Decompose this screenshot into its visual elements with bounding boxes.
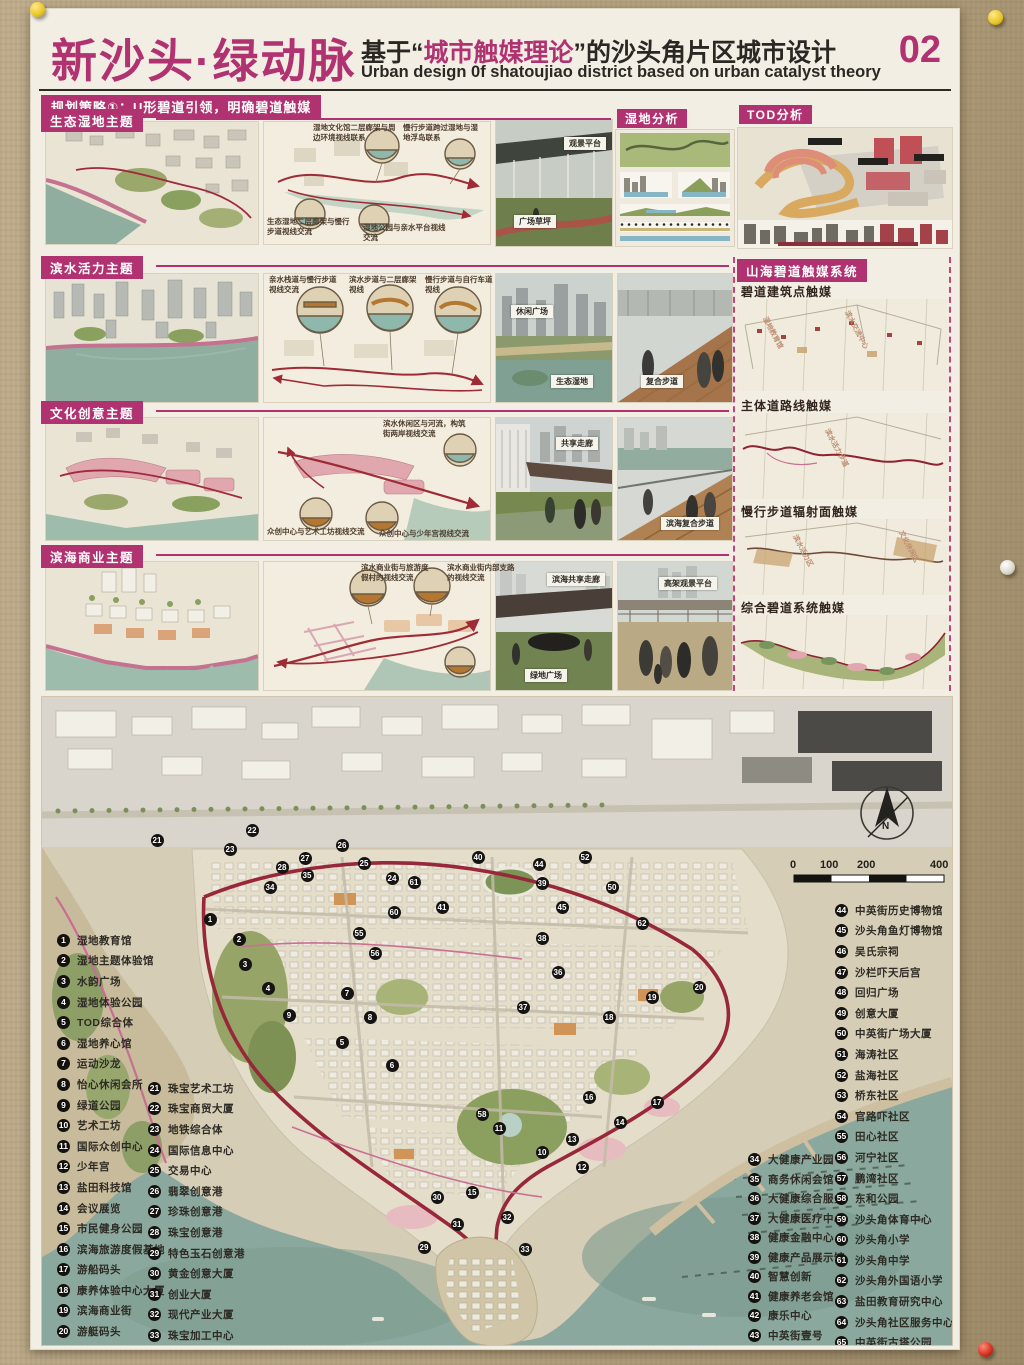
scale-label: 400 <box>930 859 948 871</box>
legend-label: 水韵广场 <box>77 974 121 989</box>
catalyst-diagram-4 <box>737 615 949 689</box>
legend-item: 37大健康医疗中心 <box>748 1209 845 1229</box>
map-marker: 30 <box>431 1191 444 1204</box>
tod-analysis-art <box>738 128 952 248</box>
legend-column-2: 21珠宝艺术工坊22珠宝商贸大厦23地铁综合体24国际信息中心25交易中心26翡… <box>148 1078 245 1346</box>
legend-number-badge: 56 <box>835 1151 848 1164</box>
wetland-analysis-art <box>616 130 734 246</box>
legend-label: 健康金融中心 <box>768 1230 834 1245</box>
legend-item: 6湿地养心馆 <box>57 1033 165 1054</box>
photo-label: 滨海共享走廊 <box>547 573 605 586</box>
map-marker: 32 <box>501 1211 514 1224</box>
aerial-waterfront-vitality-art <box>46 274 258 402</box>
tod-analysis-panel <box>737 127 953 249</box>
legend-item: 55田心社区 <box>835 1127 953 1148</box>
legend-label: 田心社区 <box>855 1129 899 1144</box>
legend-item: 51海涛社区 <box>835 1044 953 1065</box>
legend-item: 45沙头角鱼灯博物馆 <box>835 921 953 942</box>
legend-number-badge: 48 <box>835 986 848 999</box>
legend-number-badge: 20 <box>57 1325 70 1338</box>
legend-label: 沙头角小学 <box>855 1232 910 1247</box>
legend-item: 33珠宝加工中心 <box>148 1325 245 1346</box>
callout: 慢行步道与自行车道视线 <box>425 275 495 295</box>
photo-label: 复合步道 <box>641 375 683 388</box>
legend-label: 滨海商业街 <box>77 1303 132 1318</box>
legend-number-badge: 12 <box>57 1160 70 1173</box>
row-tag-waterfront-vitality: 滨水活力主题 <box>41 256 143 279</box>
legend-item: 21珠宝艺术工坊 <box>148 1078 245 1099</box>
legend-number-badge: 16 <box>57 1243 70 1256</box>
legend-item: 34大健康产业园 <box>748 1150 845 1170</box>
photo-label: 观景平台 <box>564 137 606 150</box>
legend-number-badge: 9 <box>57 1099 70 1112</box>
map-marker: 27 <box>299 852 312 865</box>
legend-label: 会议展览 <box>77 1201 121 1216</box>
legend-item: 54官路吓社区 <box>835 1106 953 1127</box>
callout: 湿地文化馆二层廊架与周边环境视线联系 <box>313 123 401 143</box>
legend-number-badge: 3 <box>57 975 70 988</box>
legend-item: 52盐海社区 <box>835 1065 953 1086</box>
panel-tag-wetland-analysis: 湿地分析 <box>617 109 687 128</box>
legend-label: 中英街历史博物馆 <box>855 903 943 918</box>
map-marker: 41 <box>436 901 449 914</box>
legend-label: 绿道公园 <box>77 1098 121 1113</box>
callout: 滨水商业街内部支路的视线交流 <box>447 563 517 583</box>
callout: 滨水步道与二层廊架视线 <box>349 275 419 295</box>
legend-number-badge: 6 <box>57 1037 70 1050</box>
legend-number-badge: 40 <box>748 1270 761 1283</box>
legend-label: 湿地体验公园 <box>77 995 143 1010</box>
legend-label: 中英街壹号 <box>768 1328 823 1343</box>
photo-shared-corridor <box>495 417 613 541</box>
aerial-eco-wetland <box>45 121 259 245</box>
legend-item: 7运动沙龙 <box>57 1054 165 1075</box>
legend-number-badge: 17 <box>57 1263 70 1276</box>
map-marker: 50 <box>606 881 619 894</box>
legend-label: 创意大厦 <box>855 1006 899 1021</box>
legend-number-badge: 36 <box>748 1192 761 1205</box>
legend-number-badge: 65 <box>835 1336 848 1346</box>
scale-label: 200 <box>857 859 875 871</box>
legend-number-badge: 58 <box>835 1192 848 1205</box>
compass-north-label: N <box>882 821 889 832</box>
legend-item: 61沙头角中学 <box>835 1250 953 1271</box>
legend-number-badge: 27 <box>148 1205 161 1218</box>
legend-number-badge: 25 <box>148 1164 161 1177</box>
map-marker: 60 <box>388 906 401 919</box>
callout: 众创中心与艺术工坊视线交流 <box>267 527 377 537</box>
legend-number-badge: 62 <box>835 1274 848 1287</box>
legend-number-badge: 11 <box>57 1140 70 1153</box>
legend-number-badge: 41 <box>748 1290 761 1303</box>
legend-label: 国际信息中心 <box>168 1143 234 1158</box>
aerial-seaside-commerce <box>45 561 259 691</box>
legend-item: 42康乐中心 <box>748 1306 845 1326</box>
legend-label: 交易中心 <box>168 1163 212 1178</box>
legend-item: 65中英街古塔公园 <box>835 1332 953 1346</box>
map-marker: 22 <box>246 824 259 837</box>
legend-number-badge: 51 <box>835 1048 848 1061</box>
legend-item: 40智慧创新 <box>748 1267 845 1287</box>
legend-column-3: 34大健康产业园35商务休闲会馆36大健康综合服务37大健康医疗中心38健康金融… <box>748 1150 845 1345</box>
map-marker: 28 <box>276 861 289 874</box>
map-marker: 40 <box>472 851 485 864</box>
map-marker: 52 <box>579 851 592 864</box>
map-marker: 21 <box>151 834 164 847</box>
right-edge-dashed <box>949 257 951 691</box>
legend-item: 56河宁社区 <box>835 1147 953 1168</box>
subtitle-en: Urban design 0f shatoujiao district base… <box>361 63 881 82</box>
legend-label: 大健康医疗中心 <box>768 1211 845 1226</box>
legend-number-badge: 13 <box>57 1181 70 1194</box>
map-marker: 23 <box>224 843 237 856</box>
legend-item: 46吴氏宗祠 <box>835 941 953 962</box>
legend-number-badge: 42 <box>748 1309 761 1322</box>
catalyst-section-3: 慢行步道辐射面触媒 <box>741 503 858 520</box>
legend-label: 国际众创中心 <box>77 1139 143 1154</box>
callout: 众创中心与少年宫视线交流 <box>379 529 489 539</box>
legend-number-badge: 34 <box>748 1153 761 1166</box>
legend-number-badge: 57 <box>835 1172 848 1185</box>
legend-item: 57鹏湾社区 <box>835 1168 953 1189</box>
legend-item: 43中英街壹号 <box>748 1326 845 1346</box>
aerial-eco-wetland-art <box>46 122 258 244</box>
legend-label: 桥东社区 <box>855 1088 899 1103</box>
legend-item: 59沙头角体育中心 <box>835 1209 953 1230</box>
map-marker: 35 <box>301 869 314 882</box>
catalyst-title: 山海碧道触媒系统 <box>737 259 867 282</box>
legend-label: 健康产品展示馆 <box>768 1250 845 1265</box>
legend-item: 22珠宝商贸大厦 <box>148 1099 245 1120</box>
map-marker: 62 <box>636 917 649 930</box>
map-marker: 8 <box>364 1011 377 1024</box>
legend-item: 47沙栏吓天后宫 <box>835 962 953 983</box>
legend-item: 1湿地教育馆 <box>57 930 165 951</box>
legend-number-badge: 35 <box>748 1173 761 1186</box>
legend-label: 沙头角外国语小学 <box>855 1273 943 1288</box>
legend-item: 3水韵广场 <box>57 971 165 992</box>
legend-label: 大健康产业园 <box>768 1152 834 1167</box>
callout: 湿地公园与亲水平台视线交流 <box>363 223 451 243</box>
legend-item: 5TOD综合体 <box>57 1012 165 1033</box>
legend-item: 23地铁综合体 <box>148 1119 245 1140</box>
scale-label: 100 <box>820 859 838 871</box>
legend-item: 26翡翠创意港 <box>148 1181 245 1202</box>
legend-label: 珠宝艺术工坊 <box>168 1081 234 1096</box>
map-marker: 9 <box>283 1009 296 1022</box>
legend-item: 25交易中心 <box>148 1160 245 1181</box>
legend-label: 智慧创新 <box>768 1269 812 1284</box>
legend-item: 63盐田教育研究中心 <box>835 1291 953 1312</box>
map-marker: 34 <box>264 881 277 894</box>
legend-item: 2湿地主题体验馆 <box>57 951 165 972</box>
legend-label: 少年宫 <box>77 1159 110 1174</box>
page-title: 新沙头·绿动脉 <box>51 25 356 91</box>
legend-item: 38健康金融中心 <box>748 1228 845 1248</box>
photo-label: 生态湿地 <box>551 375 593 388</box>
legend-item: 24国际信息中心 <box>148 1140 245 1161</box>
legend-item: 30黄金创意大厦 <box>148 1263 245 1284</box>
legend-number-badge: 39 <box>748 1251 761 1264</box>
legend-label: 翡翠创意港 <box>168 1184 223 1199</box>
legend-number-badge: 1 <box>57 934 70 947</box>
legend-item: 36大健康综合服务 <box>748 1189 845 1209</box>
legend-number-badge: 22 <box>148 1102 161 1115</box>
legend-number-badge: 24 <box>148 1144 161 1157</box>
legend-number-badge: 60 <box>835 1233 848 1246</box>
legend-number-badge: 53 <box>835 1089 848 1102</box>
legend-number-badge: 43 <box>748 1329 761 1342</box>
legend-label: 中英街古塔公园 <box>855 1335 932 1346</box>
legend-label: 沙头角体育中心 <box>855 1212 932 1227</box>
legend-number-badge: 5 <box>57 1016 70 1029</box>
legend-label: 怡心休闲会所 <box>77 1077 143 1092</box>
legend-number-badge: 10 <box>57 1119 70 1132</box>
legend-number-badge: 37 <box>748 1212 761 1225</box>
map-marker: 58 <box>476 1108 489 1121</box>
photo-label: 高架观景平台 <box>659 577 717 590</box>
legend-label: 沙头角中学 <box>855 1253 910 1268</box>
legend-item: 64沙头角社区服务中心 <box>835 1312 953 1333</box>
pushpin-white <box>1000 560 1015 575</box>
legend-column-4: 44中英街历史博物馆45沙头角鱼灯博物馆46吴氏宗祠47沙栏吓天后宫48回归广场… <box>835 900 953 1346</box>
legend-label: 市民健身公园 <box>77 1221 143 1236</box>
legend-number-badge: 46 <box>835 945 848 958</box>
legend-label: 艺术工坊 <box>77 1118 121 1133</box>
legend-number-badge: 2 <box>57 954 70 967</box>
callout: 生态湿地二层廊架与慢行步道视线交流 <box>267 217 355 237</box>
legend-number-badge: 55 <box>835 1130 848 1143</box>
legend-number-badge: 50 <box>835 1027 848 1040</box>
legend-label: 运动沙龙 <box>77 1056 121 1071</box>
map-marker: 13 <box>566 1133 579 1146</box>
legend-number-badge: 30 <box>148 1267 161 1280</box>
legend-label: 中英街广场大厦 <box>855 1026 932 1041</box>
legend-number-badge: 47 <box>835 966 848 979</box>
map-marker: 3 <box>239 958 252 971</box>
aerial-seaside-commerce-art <box>46 562 258 690</box>
aerial-waterfront-vitality <box>45 273 259 403</box>
legend-number-badge: 59 <box>835 1213 848 1226</box>
map-marker: 31 <box>451 1218 464 1231</box>
legend-number-badge: 26 <box>148 1185 161 1198</box>
legend-number-badge: 32 <box>148 1308 161 1321</box>
legend-label: 珠宝商贸大厦 <box>168 1101 234 1116</box>
legend-label: 湿地养心馆 <box>77 1036 132 1051</box>
legend-item: 32现代产业大厦 <box>148 1305 245 1326</box>
legend-label: 河宁社区 <box>855 1150 899 1165</box>
map-marker: 33 <box>519 1243 532 1256</box>
panel-tag-tod-analysis: TOD分析 <box>739 105 812 124</box>
map-marker: 61 <box>408 876 421 889</box>
legend-label: 康乐中心 <box>768 1308 812 1323</box>
legend-label: 珠宝加工中心 <box>168 1328 234 1343</box>
legend-number-badge: 61 <box>835 1254 848 1267</box>
catalyst-diagram-4-art <box>737 615 949 689</box>
column-divider-dashed <box>733 257 735 691</box>
legend-item: 28珠宝创意港 <box>148 1222 245 1243</box>
pushpin-yellow <box>988 10 1003 25</box>
map-marker: 1 <box>204 913 217 926</box>
masterplan-map: 0 100 200 400 N 212223282726252434351234… <box>41 696 953 1346</box>
scale-label: 0 <box>790 859 796 871</box>
legend-item: 41健康养老会馆 <box>748 1287 845 1307</box>
map-marker: 20 <box>693 981 706 994</box>
legend-number-badge: 7 <box>57 1057 70 1070</box>
legend-item: 44中英街历史博物馆 <box>835 900 953 921</box>
legend-item: 58东和公园 <box>835 1188 953 1209</box>
legend-label: 官路吓社区 <box>855 1109 910 1124</box>
legend-item: 27珍珠创意港 <box>148 1202 245 1223</box>
map-marker: 24 <box>386 872 399 885</box>
legend-number-badge: 63 <box>835 1295 848 1308</box>
pushpin-yellow <box>30 2 45 17</box>
photo-label: 滨海复合步道 <box>661 517 719 530</box>
legend-item: 31创业大厦 <box>148 1284 245 1305</box>
legend-label: 地铁综合体 <box>168 1122 223 1137</box>
map-marker: 19 <box>646 991 659 1004</box>
map-marker: 36 <box>552 966 565 979</box>
map-marker: 55 <box>353 927 366 940</box>
map-marker: 11 <box>493 1122 506 1135</box>
map-marker: 26 <box>336 839 349 852</box>
legend-number-badge: 52 <box>835 1069 848 1082</box>
legend-number-badge: 21 <box>148 1082 161 1095</box>
photo-label: 广场草坪 <box>514 215 556 228</box>
map-marker: 25 <box>358 857 371 870</box>
legend-label: 黄金创意大厦 <box>168 1266 234 1281</box>
map-marker: 15 <box>466 1186 479 1199</box>
legend-label: 沙头角鱼灯博物馆 <box>855 923 943 938</box>
map-marker: 17 <box>651 1096 664 1109</box>
row3-line <box>156 410 729 412</box>
legend-label: 现代产业大厦 <box>168 1307 234 1322</box>
legend-label: 商务休闲会馆 <box>768 1172 834 1187</box>
legend-item: 49创意大厦 <box>835 1003 953 1024</box>
legend-number-badge: 38 <box>748 1231 761 1244</box>
map-marker: 37 <box>517 1001 530 1014</box>
row4-line <box>156 554 729 556</box>
map-marker: 10 <box>536 1146 549 1159</box>
legend-number-badge: 18 <box>57 1284 70 1297</box>
legend-number-badge: 49 <box>835 1007 848 1020</box>
photo-label: 绿地广场 <box>525 669 567 682</box>
legend-number-badge: 44 <box>835 904 848 917</box>
legend-number-badge: 45 <box>835 924 848 937</box>
catalyst-section-2: 主体道路线触媒 <box>741 397 832 414</box>
legend-label: 大健康综合服务 <box>768 1191 845 1206</box>
callout: 亲水栈道与慢行步道视线交流 <box>269 275 339 295</box>
legend-label: TOD综合体 <box>77 1015 133 1030</box>
legend-item: 4湿地体验公园 <box>57 992 165 1013</box>
map-marker: 38 <box>536 932 549 945</box>
callout: 滨水休闲区与河流，构筑街两岸视线交流 <box>383 419 471 439</box>
legend-label: 回归广场 <box>855 985 899 1000</box>
map-marker: 14 <box>614 1116 627 1129</box>
map-marker: 5 <box>336 1036 349 1049</box>
corkboard: { "header":{ "title":"新沙头·绿动脉", "sub_pre… <box>0 0 1024 1365</box>
legend-number-badge: 14 <box>57 1202 70 1215</box>
map-marker: 12 <box>576 1161 589 1174</box>
legend-number-badge: 23 <box>148 1123 161 1136</box>
map-marker: 18 <box>603 1011 616 1024</box>
row-tag-seaside-commerce: 滨海商业主题 <box>41 545 143 568</box>
legend-number-badge: 64 <box>835 1316 848 1329</box>
map-marker: 2 <box>233 933 246 946</box>
map-marker: 56 <box>369 947 382 960</box>
legend-number-badge: 31 <box>148 1288 161 1301</box>
legend-label: 湿地教育馆 <box>77 933 132 948</box>
legend-item: 29特色玉石创意港 <box>148 1243 245 1264</box>
legend-number-badge: 8 <box>57 1078 70 1091</box>
legend-label: 盐田科技馆 <box>77 1180 132 1195</box>
legend-label: 湿地主题体验馆 <box>77 953 154 968</box>
legend-number-badge: 54 <box>835 1110 848 1123</box>
legend-number-badge: 4 <box>57 996 70 1009</box>
row-tag-culture-creative: 文化创意主题 <box>41 401 143 424</box>
header-divider <box>39 89 951 91</box>
map-marker: 16 <box>583 1091 596 1104</box>
map-marker: 39 <box>536 877 549 890</box>
catalyst-section-1: 碧道建筑点触媒 <box>741 283 832 300</box>
callout: 慢行步道跨过湿地与湿地浮岛联系 <box>403 123 481 143</box>
map-marker: 7 <box>341 987 354 1000</box>
legend-label: 珍珠创意港 <box>168 1204 223 1219</box>
design-poster: 新沙头·绿动脉 基于“城市触媒理论”的沙头角片区城市设计 Urban desig… <box>30 8 960 1350</box>
legend-number-badge: 29 <box>148 1247 161 1260</box>
legend-item: 53桥东社区 <box>835 1085 953 1106</box>
map-marker: 4 <box>262 982 275 995</box>
legend-label: 吴氏宗祠 <box>855 944 899 959</box>
legend-label: 健康养老会馆 <box>768 1289 834 1304</box>
legend-number-badge: 15 <box>57 1222 70 1235</box>
aerial-culture-creative <box>45 417 259 541</box>
callout: 滨水商业街与旅游度假村的视线交流 <box>361 563 431 583</box>
row2-line <box>156 265 729 267</box>
legend-label: 盐海社区 <box>855 1068 899 1083</box>
legend-item: 48回归广场 <box>835 982 953 1003</box>
legend-label: 盐田教育研究中心 <box>855 1294 943 1309</box>
pushpin-red <box>978 1342 993 1357</box>
legend-number-badge: 33 <box>148 1329 161 1342</box>
legend-label: 鹏湾社区 <box>855 1171 899 1186</box>
legend-item: 39健康产品展示馆 <box>748 1248 845 1268</box>
legend-label: 游船码头 <box>77 1262 121 1277</box>
legend-item: 50中英街广场大厦 <box>835 1024 953 1045</box>
legend-item: 35商务休闲会馆 <box>748 1170 845 1190</box>
aerial-culture-creative-art <box>46 418 258 540</box>
row-tag-eco-wetland: 生态湿地主题 <box>41 109 143 132</box>
legend-label: 沙栏吓天后宫 <box>855 965 921 980</box>
legend-label: 创业大厦 <box>168 1287 212 1302</box>
legend-label: 沙头角社区服务中心 <box>855 1315 953 1330</box>
catalyst-section-4: 综合碧道系统触媒 <box>741 599 845 616</box>
legend-item: 60沙头角小学 <box>835 1230 953 1251</box>
photo-label: 休闲广场 <box>511 305 553 318</box>
legend-number-badge: 19 <box>57 1304 70 1317</box>
legend-number-badge: 28 <box>148 1226 161 1239</box>
row1-line <box>156 118 611 120</box>
map-marker: 6 <box>386 1059 399 1072</box>
legend-label: 特色玉石创意港 <box>168 1246 245 1261</box>
photo-label: 共享走廊 <box>556 437 598 450</box>
legend-label: 珠宝创意港 <box>168 1225 223 1240</box>
legend-item: 62沙头角外国语小学 <box>835 1271 953 1292</box>
map-marker: 45 <box>556 901 569 914</box>
map-marker: 29 <box>418 1241 431 1254</box>
wetland-analysis-panel <box>615 129 735 247</box>
legend-label: 游艇码头 <box>77 1324 121 1339</box>
